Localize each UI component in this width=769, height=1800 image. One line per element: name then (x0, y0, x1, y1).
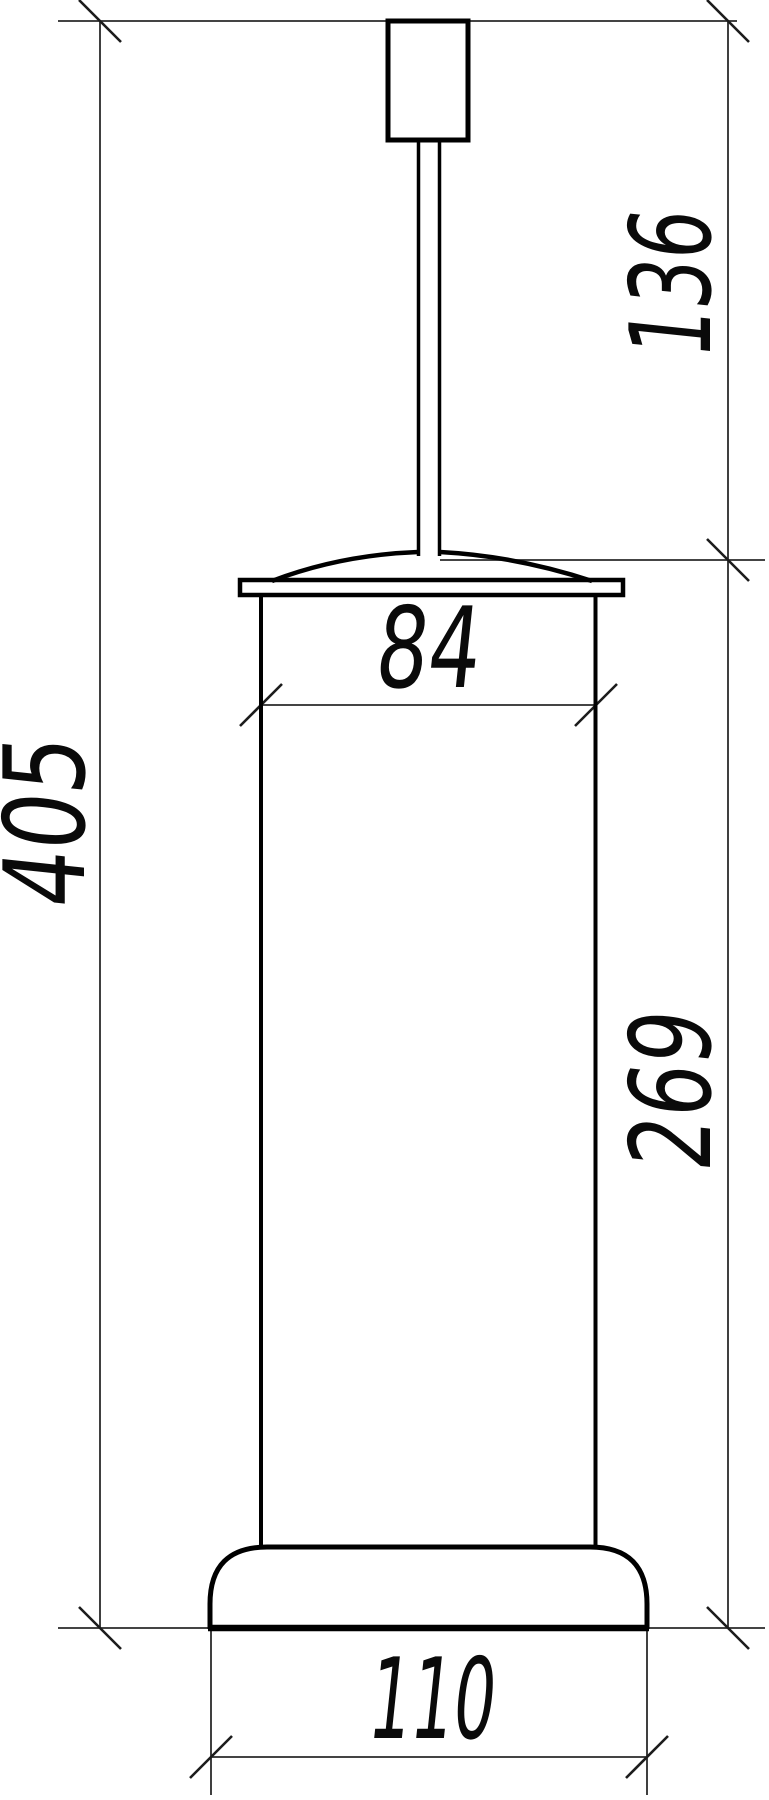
technical-drawing-canvas: 84 110 405 136 269 (0, 0, 769, 1800)
dimensioned-elevation-drawing: 84 110 405 136 269 (0, 0, 769, 1800)
handle-outline (388, 21, 468, 140)
lid-dome-right-arc (440, 552, 592, 581)
dim-text-overall-height: 405 (0, 729, 111, 913)
dim-text-body-width: 84 (370, 584, 488, 714)
lid-dome-left-arc (272, 552, 418, 581)
dim-text-base-width: 110 (363, 1635, 503, 1765)
base-outline (210, 1547, 647, 1629)
dim-text-body-height: 269 (607, 1004, 737, 1176)
dim-text-upper-section-height: 136 (607, 203, 737, 364)
